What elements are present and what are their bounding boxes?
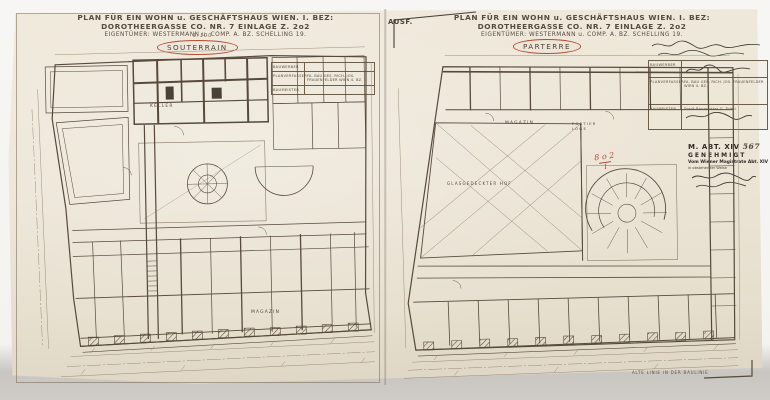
right-sheet-title: PLAN FÜR EIN WOHN u. GESCHÄFTSHAUS WIEN.… (412, 13, 752, 31)
bottom-baulinie-note: ALTE LINIE IN DER BAULINIE (632, 370, 708, 375)
room-label-keller: KELLER (150, 104, 174, 109)
room-label-magazin: MAGAZIN (251, 310, 280, 315)
room-label-glass-courtyard: GLASGEDECKTER HOF (447, 181, 512, 186)
parterre-floor-plan-drawing (392, 46, 744, 386)
souterrain-floor-plan-drawing (28, 46, 376, 380)
right-sheet-header: PLAN FÜR EIN WOHN u. GESCHÄFTSHAUS WIEN.… (412, 13, 752, 38)
left-sheet-title: PLAN FÜR EIN WOHN u. GESCHÄFTSHAUS WIEN.… (38, 13, 373, 31)
left-scale-note: 1:100 (193, 33, 212, 39)
photographed-plan-document: PLAN FÜR EIN WOHN u. GESCHÄFTSHAUS WIEN.… (0, 0, 770, 400)
stamp-number-handwritten: 567 (743, 142, 760, 151)
corner-bracket-mark (700, 358, 760, 384)
room-label-portier-loge: PORTIER LOGE (572, 121, 598, 132)
room-label-magazin-right: MAGAZIN (505, 121, 534, 126)
center-fold-crease (384, 9, 387, 385)
